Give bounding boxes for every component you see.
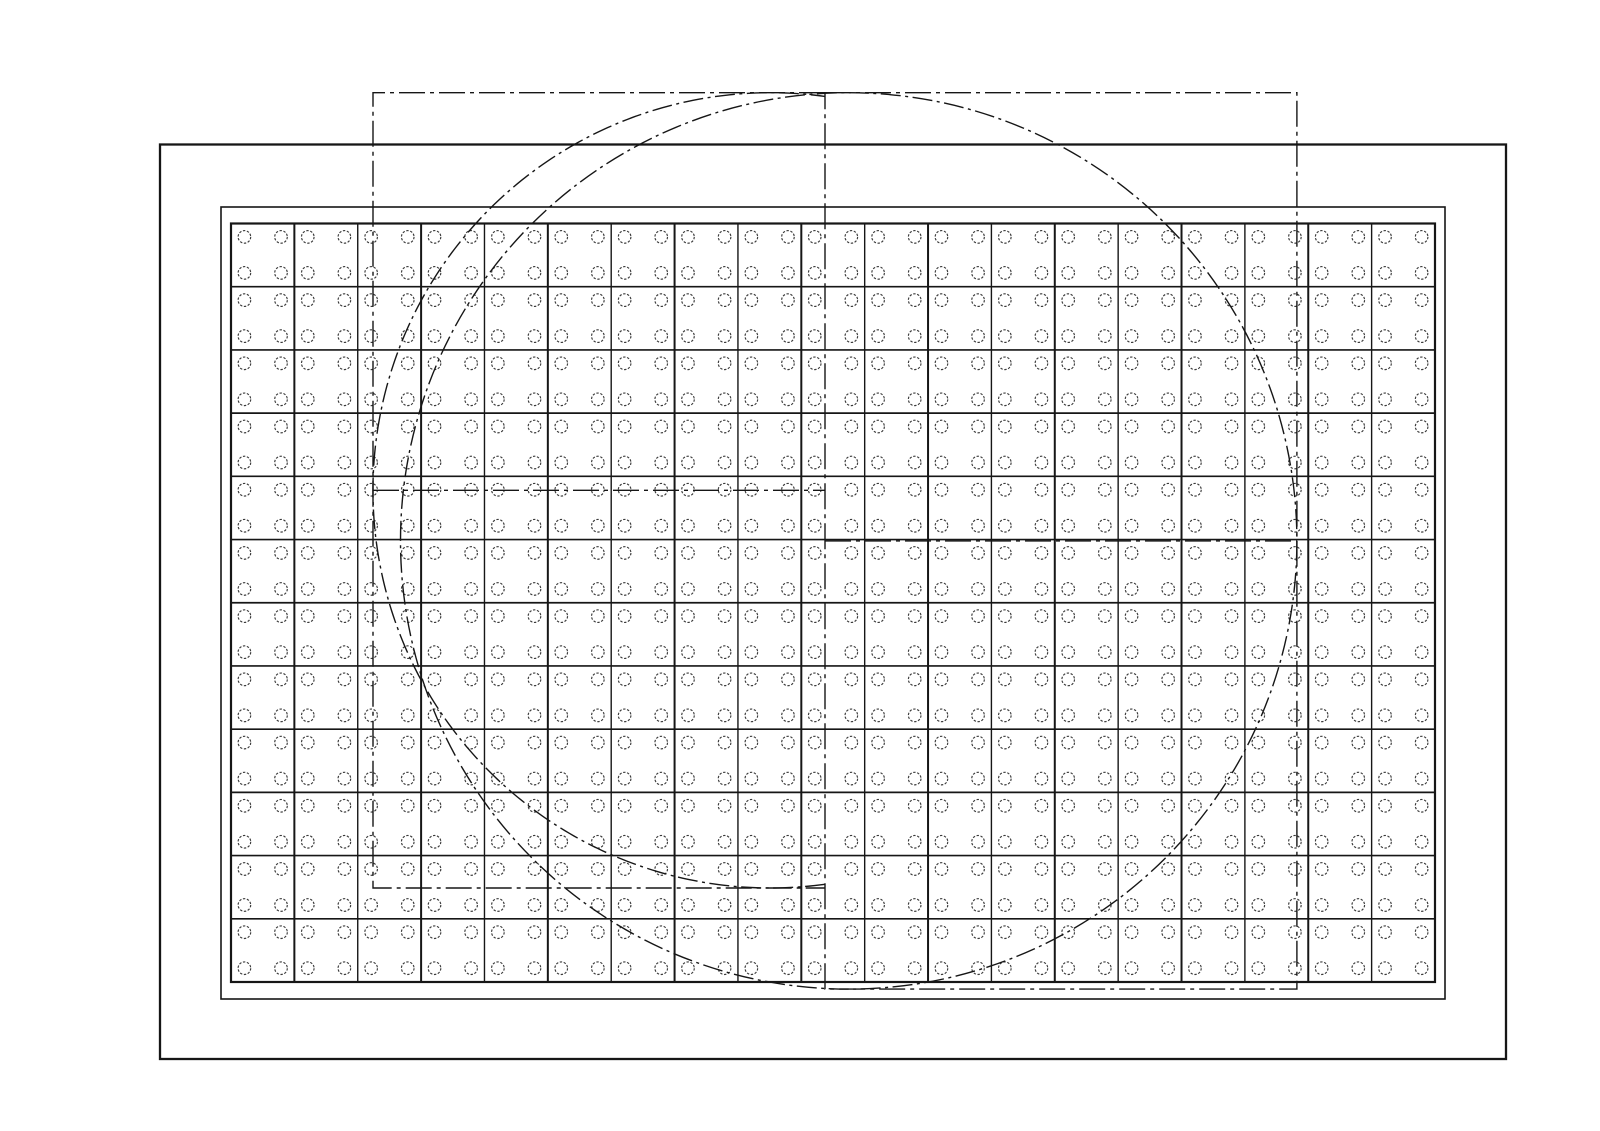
figure-canvas bbox=[0, 0, 1600, 1131]
drawing-canvas bbox=[0, 0, 1600, 1131]
cell-grid bbox=[231, 224, 1435, 982]
